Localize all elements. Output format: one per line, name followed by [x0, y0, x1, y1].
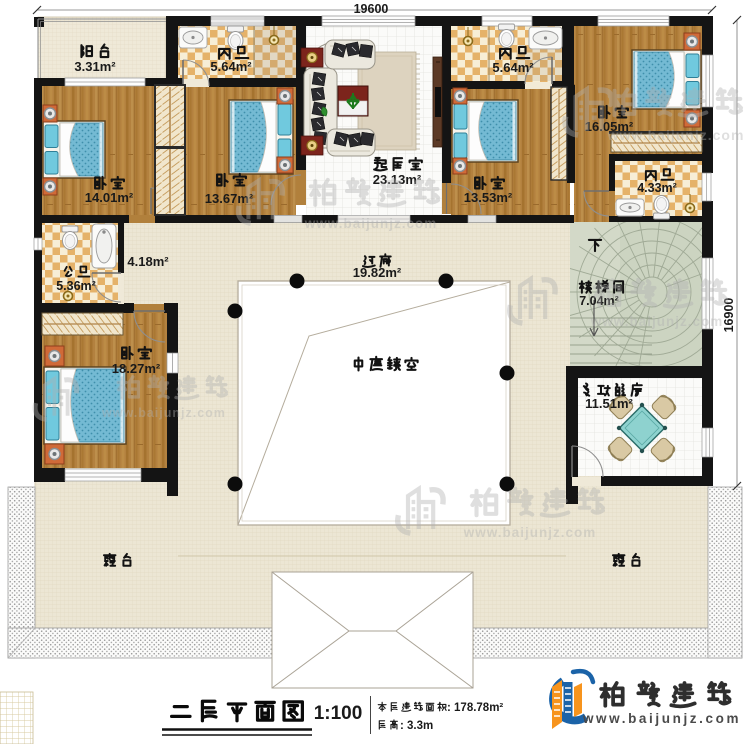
svg-text:3.31m²: 3.31m² [74, 59, 116, 74]
svg-text:5.64m²: 5.64m² [210, 59, 252, 74]
svg-text:18.27m²: 18.27m² [112, 361, 161, 376]
svg-text:: 3.3m: : 3.3m [400, 720, 433, 732]
svg-text:5.64m²: 5.64m² [492, 60, 534, 75]
svg-text:14.01m²: 14.01m² [85, 190, 134, 205]
svg-text:11.51m²: 11.51m² [585, 396, 633, 411]
svg-text:www.baijunjz.com: www.baijunjz.com [101, 406, 226, 420]
svg-text:4.18m²: 4.18m² [127, 254, 169, 269]
svg-text:5.36m²: 5.36m² [56, 279, 96, 293]
svg-text:1:100: 1:100 [314, 703, 363, 724]
svg-text:4.33m²: 4.33m² [637, 181, 677, 195]
svg-text:www.baijunjz.com: www.baijunjz.com [590, 314, 724, 329]
svg-text:19.82m²: 19.82m² [353, 265, 402, 280]
svg-text:13.53m²: 13.53m² [464, 190, 513, 205]
svg-text:www.baijunjz.com: www.baijunjz.com [463, 525, 597, 540]
svg-text:: 178.78m²: : 178.78m² [447, 702, 503, 714]
svg-text:www.baijunjz.com: www.baijunjz.com [582, 711, 741, 726]
svg-text:www.baijunjz.com: www.baijunjz.com [607, 127, 745, 143]
svg-text:19600: 19600 [354, 2, 389, 16]
svg-text:www.baijunjz.com: www.baijunjz.com [304, 216, 438, 231]
